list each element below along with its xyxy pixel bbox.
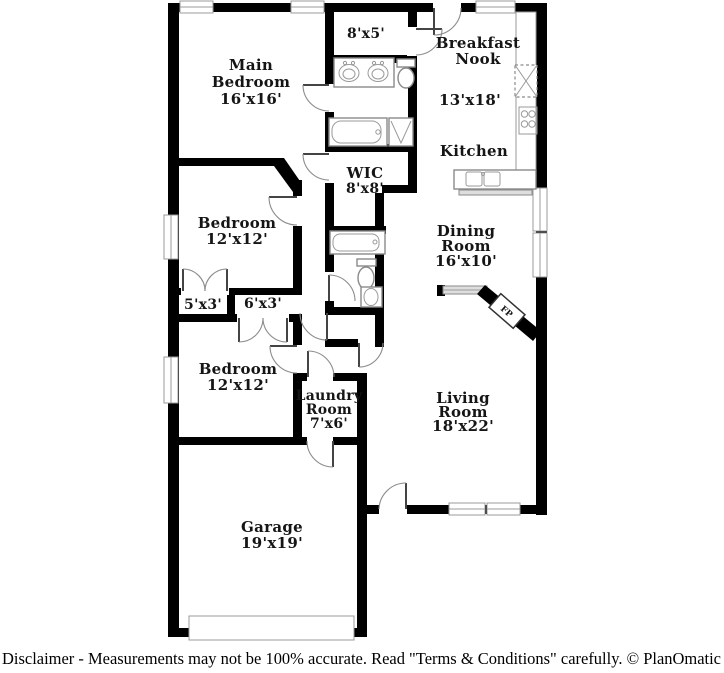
room-dims-living: 18'x22' [432, 417, 494, 435]
room-dims-bedroom-2: 12'x12' [207, 376, 269, 394]
closet-small-doors [183, 269, 227, 291]
disclaimer-text: Disclaimer - Measurements may not be 100… [2, 649, 721, 668]
room-dims-main-bedroom: 16'x16' [220, 90, 282, 108]
mainbed-door-opening [324, 84, 335, 112]
front-door-opening [379, 504, 407, 515]
wic-door-opening [324, 152, 335, 183]
room-dims-dining: 16'x10' [435, 252, 497, 270]
garage-door [189, 616, 354, 640]
wall-diagonal-corner [274, 158, 302, 192]
room-dims-laundry: 7'x6' [310, 416, 348, 432]
wall-bath2-bottom [325, 307, 384, 315]
floor-plan: FP [0, 0, 724, 673]
bedroom1-door-opening [292, 196, 303, 226]
room-dims-garage: 19'x19' [241, 534, 303, 552]
bedroom2-door-opening [292, 345, 303, 373]
kitchen-bar-ledge [459, 190, 532, 195]
fireplace: FP [437, 285, 541, 341]
room-label-wic: WIC [346, 164, 384, 182]
wall-garage-top [168, 437, 367, 445]
room-label-main-bedroom: Bedroom [212, 73, 291, 91]
room-dims-wic: 8'x8' [346, 181, 384, 197]
toilet [358, 267, 374, 289]
bathtub [329, 118, 387, 146]
wall-hall-south [325, 339, 358, 347]
toilet [398, 68, 414, 88]
wall-mainbed-bottom [168, 158, 280, 166]
room-label-kitchen: Kitchen [440, 142, 508, 160]
wall-garage-right [357, 373, 367, 637]
room-label-main-bedroom: Main [229, 56, 273, 74]
room-dims-closet-large: 6'x3' [244, 296, 282, 312]
laundry-hall-door-opening [307, 372, 333, 382]
stove [519, 107, 537, 134]
room-label-breakfast-nook: Nook [455, 50, 501, 68]
room-dims-closet-small: 5'x3' [184, 297, 222, 313]
room-dims-bath-8x5: 8'x5' [347, 26, 385, 42]
wall-wic-step [382, 185, 417, 193]
toilet-tank [397, 59, 415, 67]
wall-bath2-right [375, 193, 384, 347]
laundry-garage-door-opening [307, 436, 333, 446]
toilet-tank [357, 259, 376, 266]
back-door-opening [433, 2, 461, 13]
main-bath-fixtures [329, 58, 415, 146]
corridor-hall-door [300, 313, 327, 340]
room-dims-bedroom-1: 12'x12' [206, 230, 268, 248]
room-dims-breakfast-nook: 13'x18' [439, 91, 501, 109]
bath8x5-door-opening [407, 27, 418, 56]
